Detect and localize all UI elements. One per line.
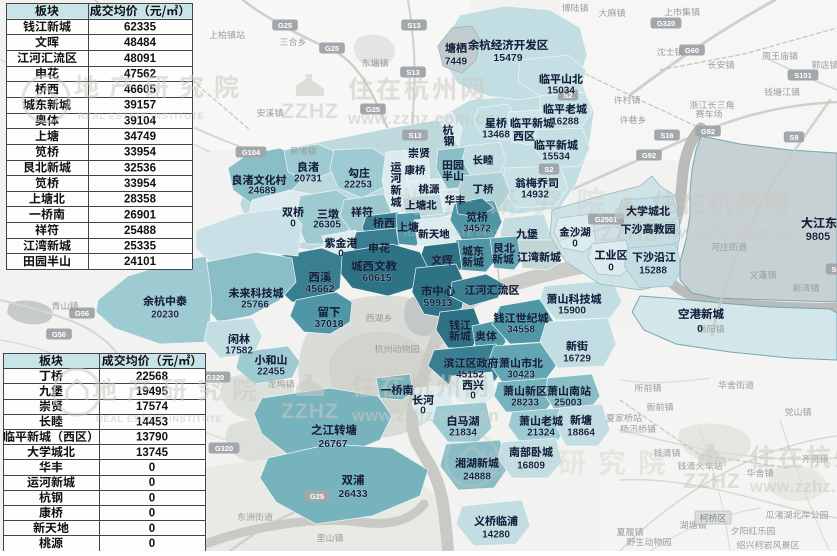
svg-text:G320: G320 xyxy=(657,19,675,28)
svg-text:S9: S9 xyxy=(831,265,837,274)
svg-text:22253: 22253 xyxy=(344,180,372,191)
svg-text:18864: 18864 xyxy=(567,428,595,439)
svg-text:G320: G320 xyxy=(215,444,233,453)
svg-text:S16: S16 xyxy=(660,131,673,140)
svg-text:62335: 62335 xyxy=(124,22,157,34)
svg-text:28233: 28233 xyxy=(511,398,539,409)
svg-text:S9: S9 xyxy=(789,133,798,142)
svg-text:60615: 60615 xyxy=(362,272,391,284)
svg-text:22455: 22455 xyxy=(257,367,285,378)
svg-text:S13: S13 xyxy=(408,131,421,140)
svg-text:0: 0 xyxy=(470,391,476,402)
svg-text:13790: 13790 xyxy=(136,432,168,444)
svg-text:16809: 16809 xyxy=(517,461,545,472)
svg-text:21324: 21324 xyxy=(527,428,555,439)
svg-text:26767: 26767 xyxy=(318,438,347,450)
svg-text:15034: 15034 xyxy=(547,86,575,97)
svg-text:21834: 21834 xyxy=(449,428,477,439)
svg-text:0: 0 xyxy=(149,462,155,474)
svg-text:15479: 15479 xyxy=(493,52,522,64)
svg-text:34558: 34558 xyxy=(507,325,535,336)
svg-text:15288: 15288 xyxy=(639,266,667,277)
svg-text:14932: 14932 xyxy=(521,190,549,201)
svg-text:S13: S13 xyxy=(407,21,420,30)
svg-text:0: 0 xyxy=(697,323,703,335)
svg-text:G25: G25 xyxy=(325,44,339,53)
svg-text:24689: 24689 xyxy=(248,186,276,197)
svg-text:33954: 33954 xyxy=(124,178,157,190)
svg-text:26305: 26305 xyxy=(313,220,341,231)
svg-text:45152: 45152 xyxy=(456,370,484,381)
svg-text:13745: 13745 xyxy=(136,447,169,459)
svg-text:32536: 32536 xyxy=(124,162,156,174)
svg-text:33954: 33954 xyxy=(124,147,157,159)
svg-text:0: 0 xyxy=(572,239,578,250)
svg-text:13468: 13468 xyxy=(482,130,510,141)
svg-text:24101: 24101 xyxy=(124,256,157,268)
svg-text:17574: 17574 xyxy=(136,401,169,413)
svg-text:ZZHZ: ZZHZ xyxy=(683,470,741,493)
svg-text:34749: 34749 xyxy=(124,131,156,143)
svg-text:0: 0 xyxy=(149,508,155,520)
svg-text:20731: 20731 xyxy=(294,174,322,185)
svg-text:REAL ESTATE INSTITUTE: REAL ESTATE INSTITUTE xyxy=(78,111,205,122)
svg-text:9805: 9805 xyxy=(806,231,830,243)
svg-text:14280: 14280 xyxy=(482,530,510,541)
svg-text:15534: 15534 xyxy=(542,152,570,163)
svg-text:G56: G56 xyxy=(75,309,89,318)
svg-text:25488: 25488 xyxy=(124,225,157,237)
svg-text:16729: 16729 xyxy=(563,354,591,365)
svg-text:ZZHZ: ZZHZ xyxy=(281,400,339,423)
svg-text:39157: 39157 xyxy=(124,100,156,112)
svg-text:ZZHZ: ZZHZ xyxy=(281,100,339,123)
svg-text:28358: 28358 xyxy=(124,194,157,206)
svg-text:S101: S101 xyxy=(794,71,812,80)
svg-text:16288: 16288 xyxy=(551,117,579,128)
svg-text:15900: 15900 xyxy=(558,306,586,317)
svg-text:7449: 7449 xyxy=(445,57,468,68)
svg-text:0: 0 xyxy=(290,219,296,230)
svg-text:26901: 26901 xyxy=(124,209,157,221)
svg-text:45662: 45662 xyxy=(305,283,334,295)
svg-text:0: 0 xyxy=(149,523,155,535)
svg-text:G104: G104 xyxy=(242,148,261,157)
svg-text:26433: 26433 xyxy=(338,488,367,500)
svg-text:0: 0 xyxy=(338,249,344,260)
svg-text:37018: 37018 xyxy=(314,318,343,330)
svg-text:G56: G56 xyxy=(52,330,66,339)
svg-text:G92: G92 xyxy=(701,127,715,136)
svg-text:www.zzhz.com.cn: www.zzhz.com.cn xyxy=(347,110,495,128)
svg-text:30423: 30423 xyxy=(507,370,535,381)
svg-text:0: 0 xyxy=(149,492,155,504)
svg-text:G92: G92 xyxy=(642,151,656,160)
svg-text:59913: 59913 xyxy=(423,297,452,309)
svg-text:G25: G25 xyxy=(278,21,292,30)
svg-text:48091: 48091 xyxy=(124,53,157,65)
svg-text:0: 0 xyxy=(608,263,614,274)
svg-text:0: 0 xyxy=(149,477,155,489)
svg-text:www.zzhz.com.cn: www.zzhz.com.cn xyxy=(749,478,837,496)
svg-text:25003: 25003 xyxy=(554,398,582,409)
svg-text:0: 0 xyxy=(420,406,426,417)
svg-text:20230: 20230 xyxy=(151,310,179,321)
svg-text:25766: 25766 xyxy=(241,300,269,311)
svg-text:17582: 17582 xyxy=(225,346,253,357)
svg-text:REAL ESTATE INSTITUTE: REAL ESTATE INSTITUTE xyxy=(96,414,223,425)
svg-text:24888: 24888 xyxy=(463,472,491,483)
svg-text:S13: S13 xyxy=(406,68,419,77)
svg-text:S2: S2 xyxy=(544,165,553,174)
svg-text:25335: 25335 xyxy=(124,241,157,253)
svg-text:34572: 34572 xyxy=(463,224,491,235)
svg-text:0: 0 xyxy=(149,538,155,550)
svg-text:48484: 48484 xyxy=(124,37,157,49)
svg-text:G60: G60 xyxy=(685,46,699,55)
svg-text:G25: G25 xyxy=(310,492,324,501)
